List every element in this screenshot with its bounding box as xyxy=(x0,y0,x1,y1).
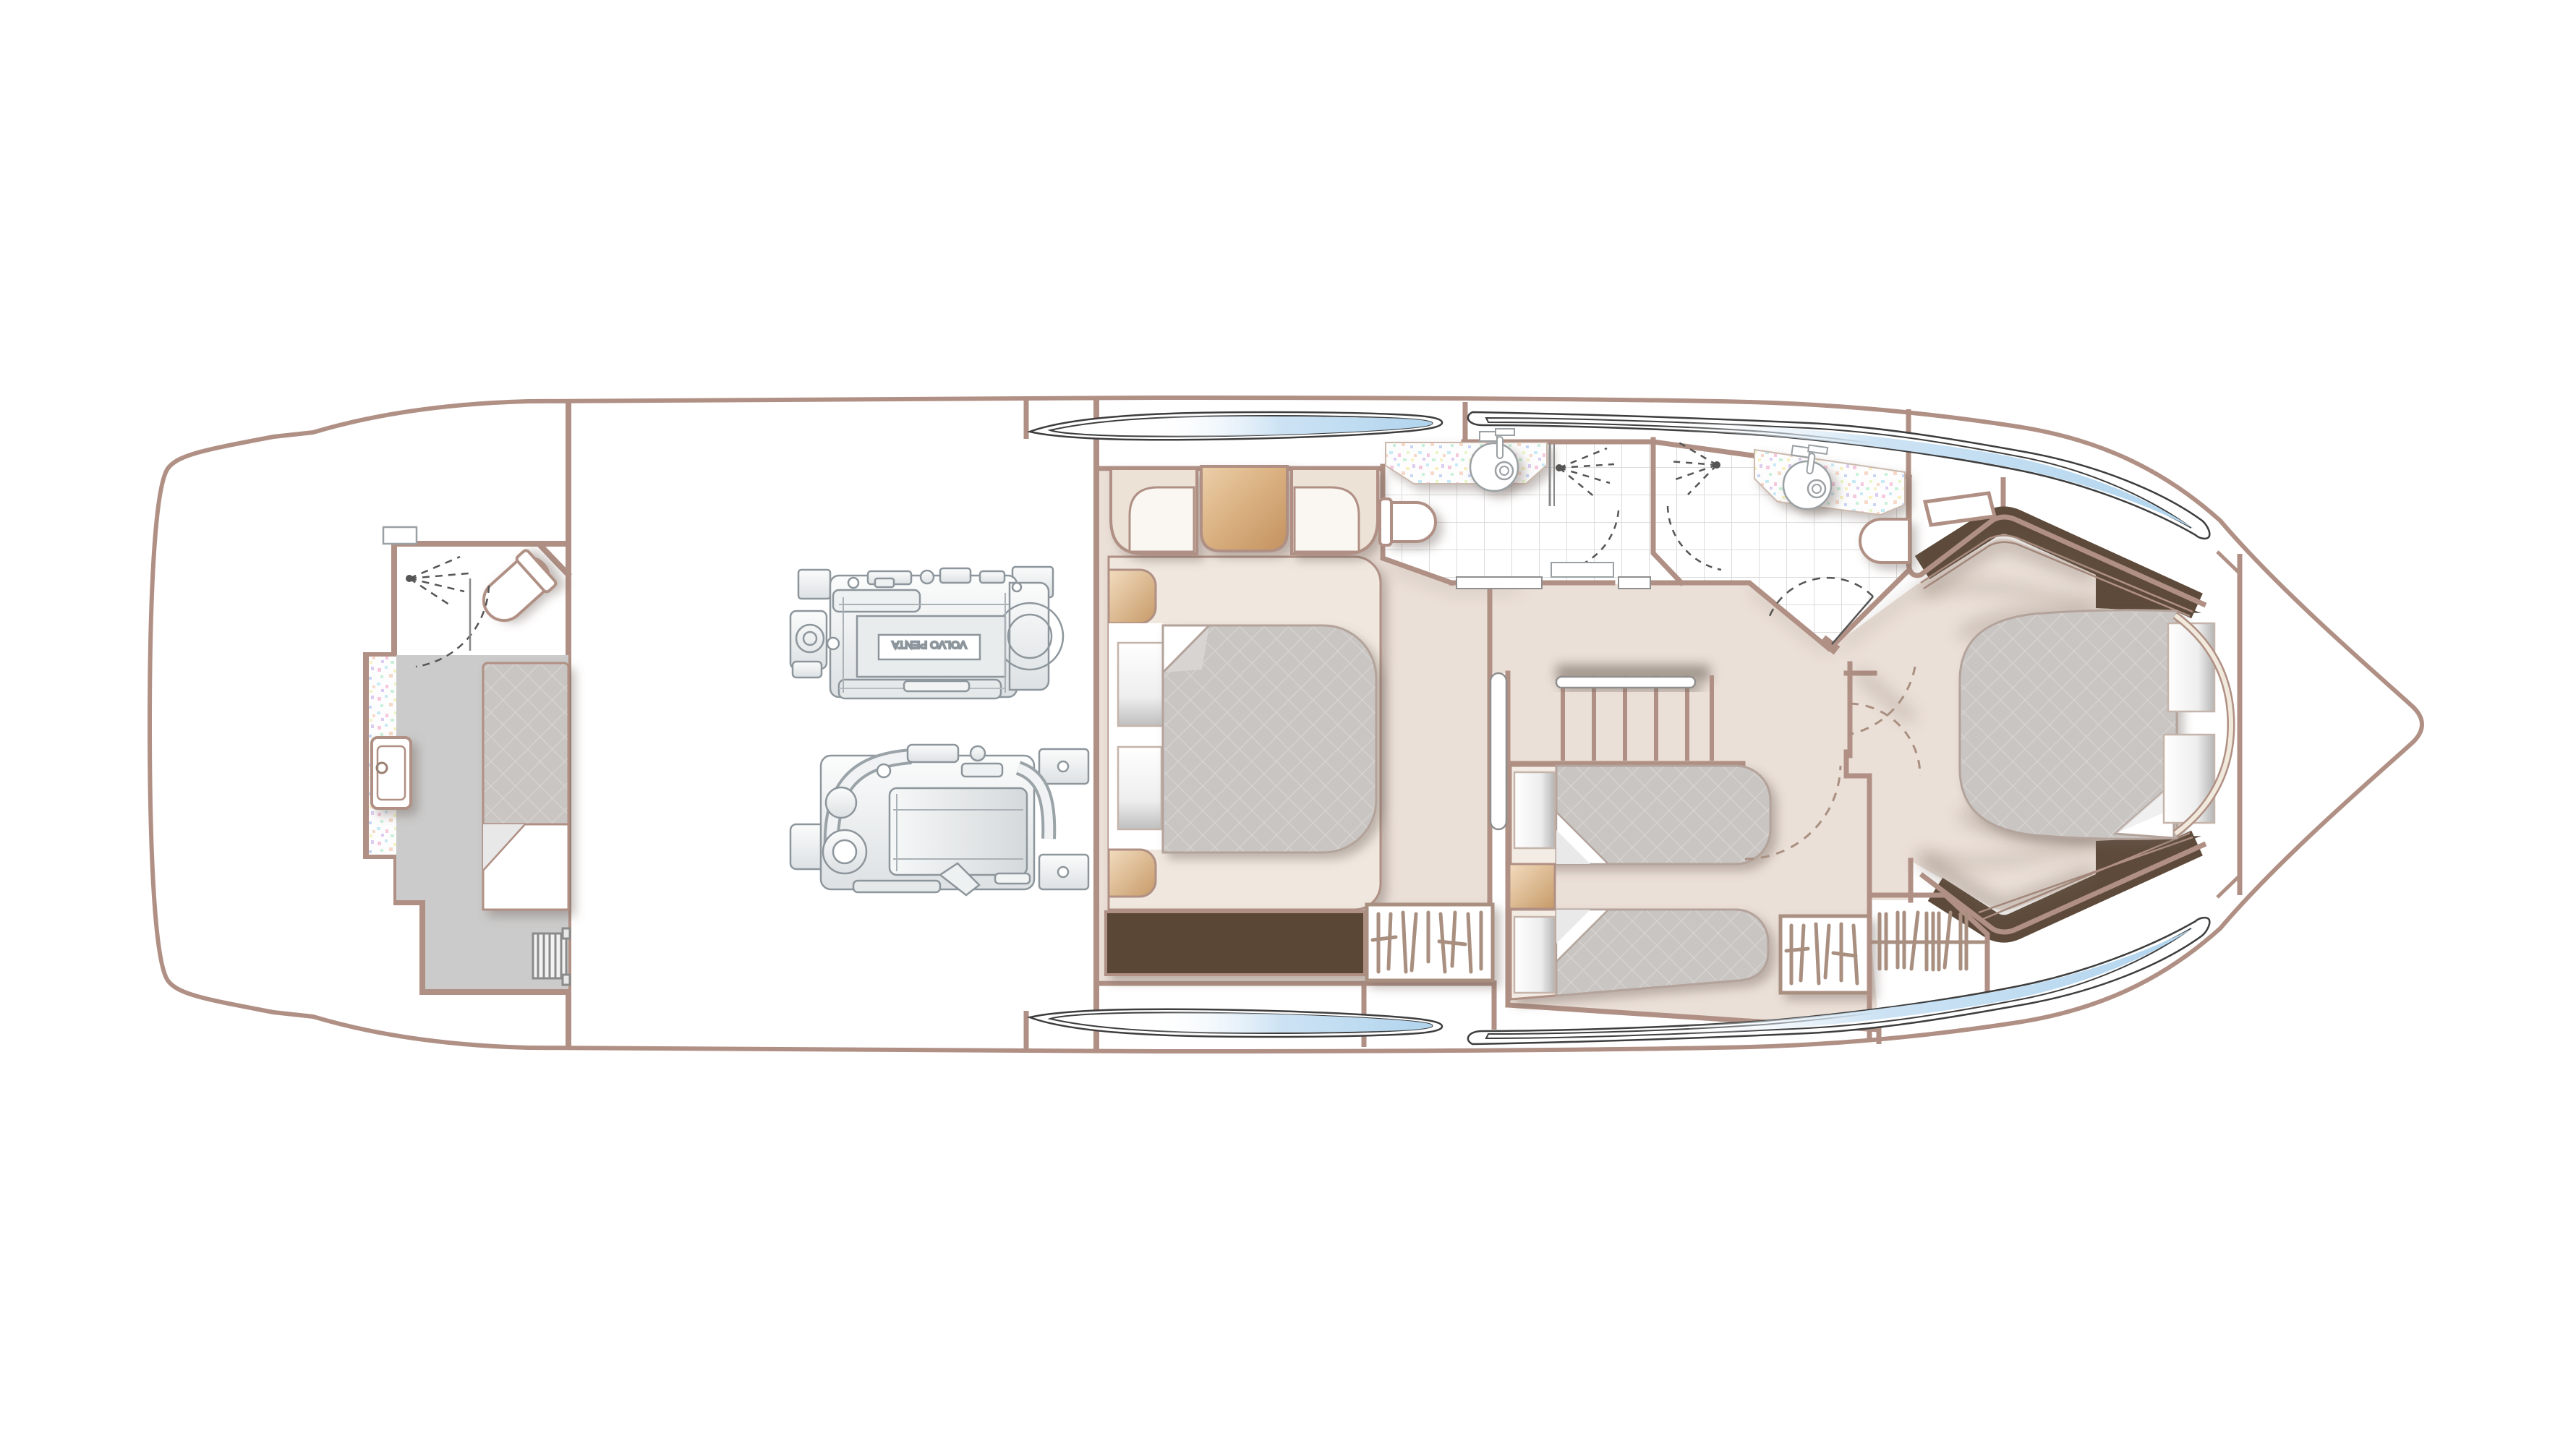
svg-text:VOLVO PENTA: VOLVO PENTA xyxy=(892,638,967,651)
